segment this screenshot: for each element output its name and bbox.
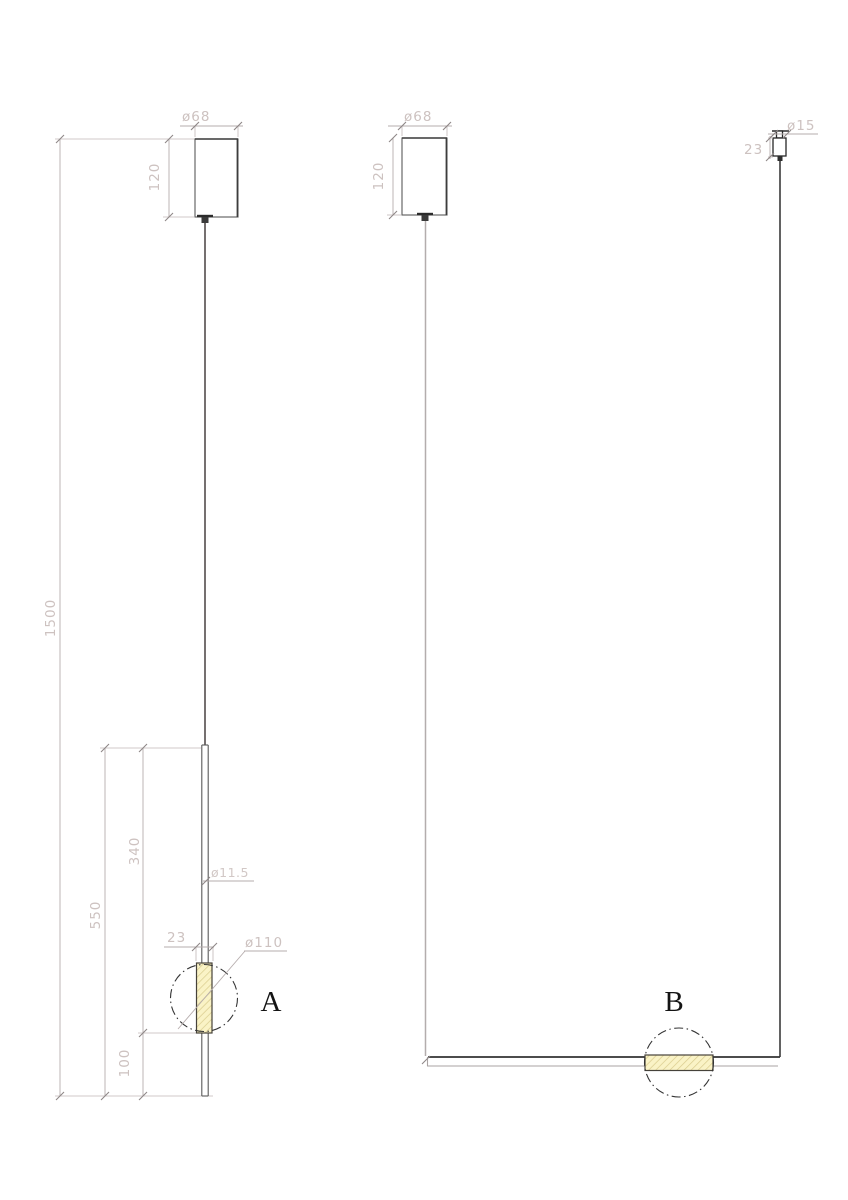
dim-text-canopy-height: 120 <box>147 163 163 192</box>
canopy-a <box>195 139 238 217</box>
dim-text-anchor-diameter: ø15 <box>787 118 815 134</box>
dim-text-canopy-height-b: 120 <box>371 162 387 191</box>
anchor-body <box>773 138 786 156</box>
technical-drawing: 1500 ø68 120 550 <box>0 0 848 1200</box>
dim-text-canopy-diameter: ø68 <box>182 109 210 125</box>
dim-text-body-length: 550 <box>88 901 104 930</box>
dim-text-canopy-diameter-b: ø68 <box>404 109 432 125</box>
dim-text-overall-length: 1500 <box>43 599 59 637</box>
dim-text-sphere-diameter: ø110 <box>245 935 283 951</box>
dim-text-lower-length: 100 <box>117 1049 133 1078</box>
dim-tick <box>422 1056 430 1064</box>
dim-text-anchor-height: 23 <box>744 142 763 158</box>
detail-label-b: B <box>664 986 683 1018</box>
canopy-b <box>402 138 447 215</box>
dim-text-rod-diameter: ø11.5 <box>211 865 249 880</box>
view-b: ø68 120 ø15 23 <box>371 109 818 1097</box>
cable-gripper-b-body <box>422 215 429 221</box>
dim-text-upper-length: 340 <box>127 837 143 866</box>
dim-text-tube-width: 23 <box>167 930 186 946</box>
tube-section-b <box>645 1055 713 1071</box>
drawing-canvas: 1500 ø68 120 550 <box>0 0 848 1200</box>
cable-gripper-a-body <box>202 217 209 223</box>
view-a: 1500 ø68 120 550 <box>43 109 287 1100</box>
detail-label-a: A <box>261 986 282 1018</box>
anchor-stub <box>777 131 783 138</box>
